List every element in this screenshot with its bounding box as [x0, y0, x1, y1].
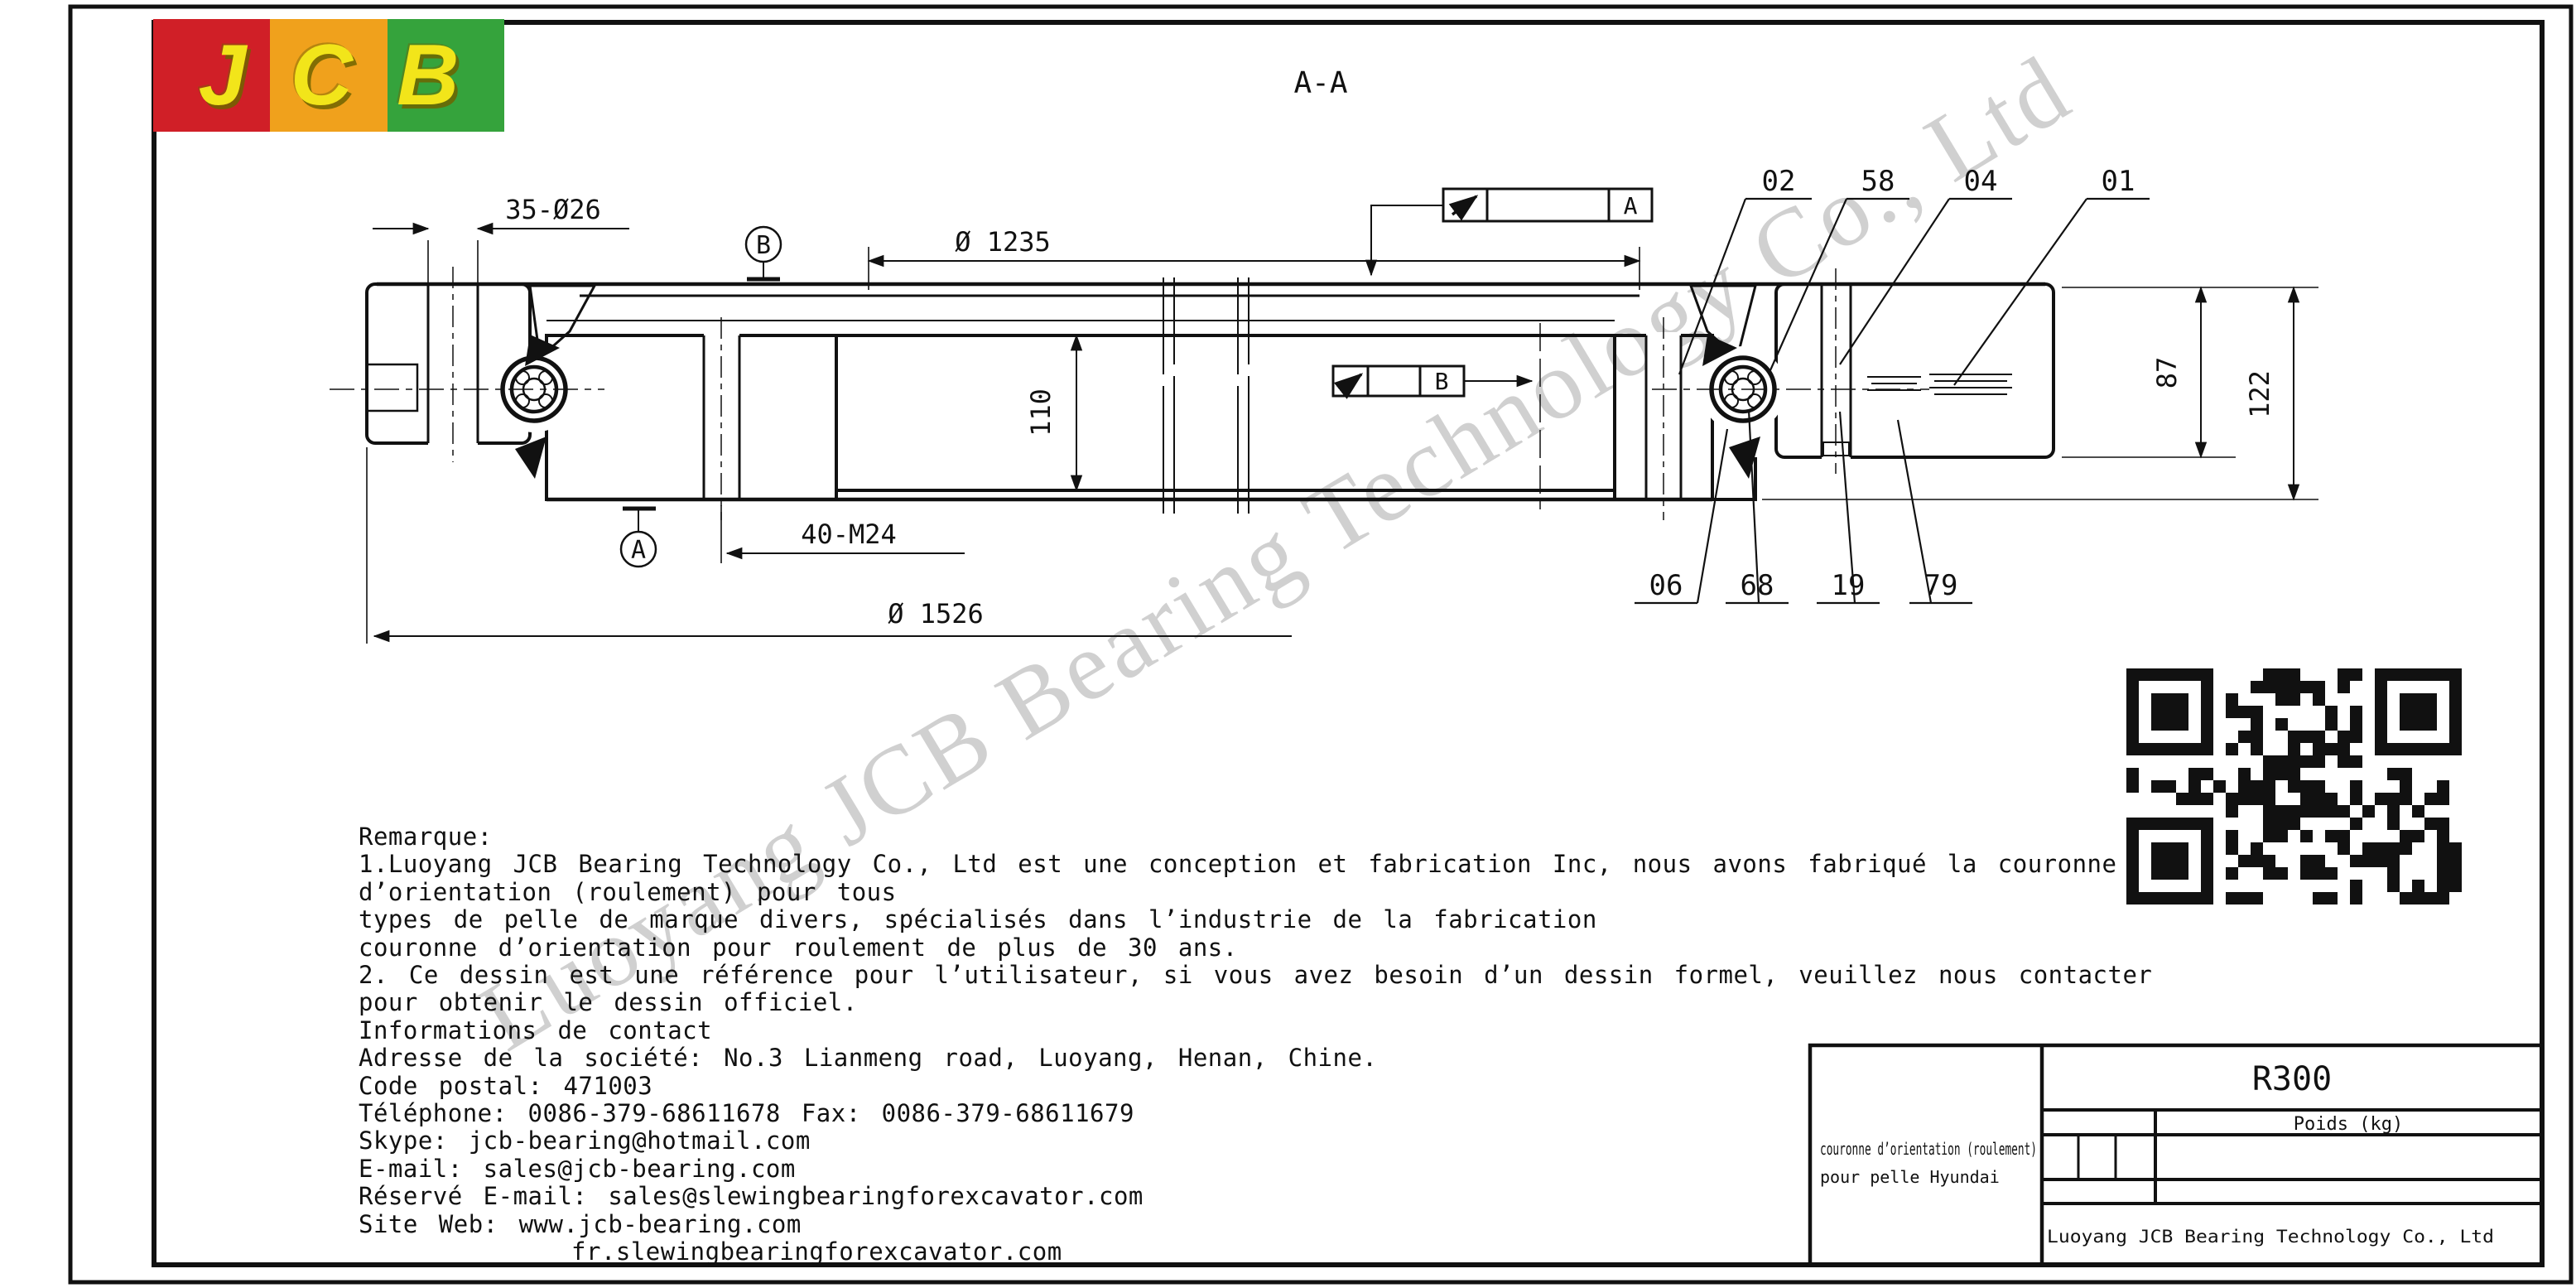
remark-line: types de pelle de marque divers, spécial… — [359, 906, 2152, 933]
drawing-sheet: Luoyang JCB Bearing Technology Co., Ltd … — [0, 0, 2576, 1288]
callout-06: 06 — [1649, 569, 1683, 602]
remark-line: fr.slewingbearingforexcavator.com — [359, 1238, 2152, 1266]
remark-line: Remarque: — [359, 823, 2152, 851]
thread-lines — [1867, 374, 2012, 394]
datum-b: B — [746, 227, 781, 279]
remarks-block: Remarque: 1.Luoyang JCB Bearing Technolo… — [359, 823, 2152, 1266]
remark-line: Adresse de la société: No.3 Lianmeng roa… — [359, 1044, 2152, 1072]
logo-letters: J C B — [153, 19, 504, 132]
seals — [515, 335, 1760, 479]
remark-line: Informations de contact — [359, 1017, 2152, 1044]
callout-58: 58 — [1861, 165, 1895, 198]
callout-01: 01 — [2102, 165, 2135, 198]
svg-text:B: B — [1435, 368, 1449, 395]
dim-outer-ring-height: 87 — [2151, 357, 2183, 389]
model-number: R300 — [2252, 1060, 2332, 1098]
svg-text:A: A — [631, 536, 646, 565]
centerlines — [330, 323, 1929, 509]
weight-label: Poids (kg) — [2294, 1114, 2403, 1135]
callout-79: 79 — [1924, 569, 1958, 602]
remark-line: Réservé E-mail: sales@slewingbearingfore… — [359, 1183, 2152, 1210]
callout-04: 04 — [1964, 165, 1998, 198]
callout-68: 68 — [1741, 569, 1774, 602]
remark-line: 2. Ce dessin est une référence pour l’ut… — [359, 962, 2152, 989]
remark-line: E-mail: sales@jcb-bearing.com — [359, 1155, 2152, 1183]
remark-line: Site Web: www.jcb-bearing.com — [359, 1211, 2152, 1238]
dim-total-height: 122 — [2244, 370, 2275, 418]
outer-ring-right — [1776, 284, 2054, 457]
grease-hole — [368, 364, 417, 411]
inner-ring-left — [546, 335, 836, 499]
dim-bolt-thread-inner: 40-M24 — [801, 519, 897, 550]
callouts-bottom: 06 68 19 79 — [1635, 410, 1972, 603]
svg-text:B: B — [756, 231, 771, 260]
dim-bore-height: 110 — [1025, 388, 1057, 437]
jcb-logo: J C B — [153, 19, 504, 132]
section-title: A-A — [1293, 66, 1347, 100]
dim-outer-diameter: Ø 1526 — [888, 598, 984, 630]
remark-line: d’orientation (roulement) pour tous — [359, 879, 2152, 906]
runout-arrow-icon — [1341, 374, 1361, 390]
dimensions: 35-Ø26 Ø 1235 110 40-M24 Ø 1526 87 — [367, 194, 2318, 644]
datum-a: A — [621, 509, 656, 567]
bearing-section — [330, 267, 2054, 520]
callout-19: 19 — [1832, 569, 1866, 602]
remark-line: Skype: jcb-bearing@hotmail.com — [359, 1127, 2152, 1155]
svg-text:A: A — [1624, 192, 1638, 219]
break-lines — [1163, 277, 1249, 514]
remark-line: couronne d’orientation pour roulement de… — [359, 934, 2152, 962]
remark-line: 1.Luoyang JCB Bearing Technology Co., Lt… — [359, 851, 2152, 878]
qr-code — [2126, 668, 2462, 904]
remark-line: Téléphone: 0086-379-68611678 Fax: 0086-3… — [359, 1100, 2152, 1127]
callout-02: 02 — [1762, 165, 1796, 198]
remark-line: pour obtenir le dessin officiel. — [359, 989, 2152, 1016]
dim-inner-diameter: Ø 1235 — [955, 226, 1051, 258]
dim-bolt-holes-outer: 35-Ø26 — [505, 194, 601, 225]
runout-arrow-icon — [1452, 196, 1476, 215]
tolerance-frame-b: B — [1333, 366, 1532, 396]
tolerance-frame-a: A — [1371, 189, 1652, 275]
remark-line: Code postal: 471003 — [359, 1073, 2152, 1100]
